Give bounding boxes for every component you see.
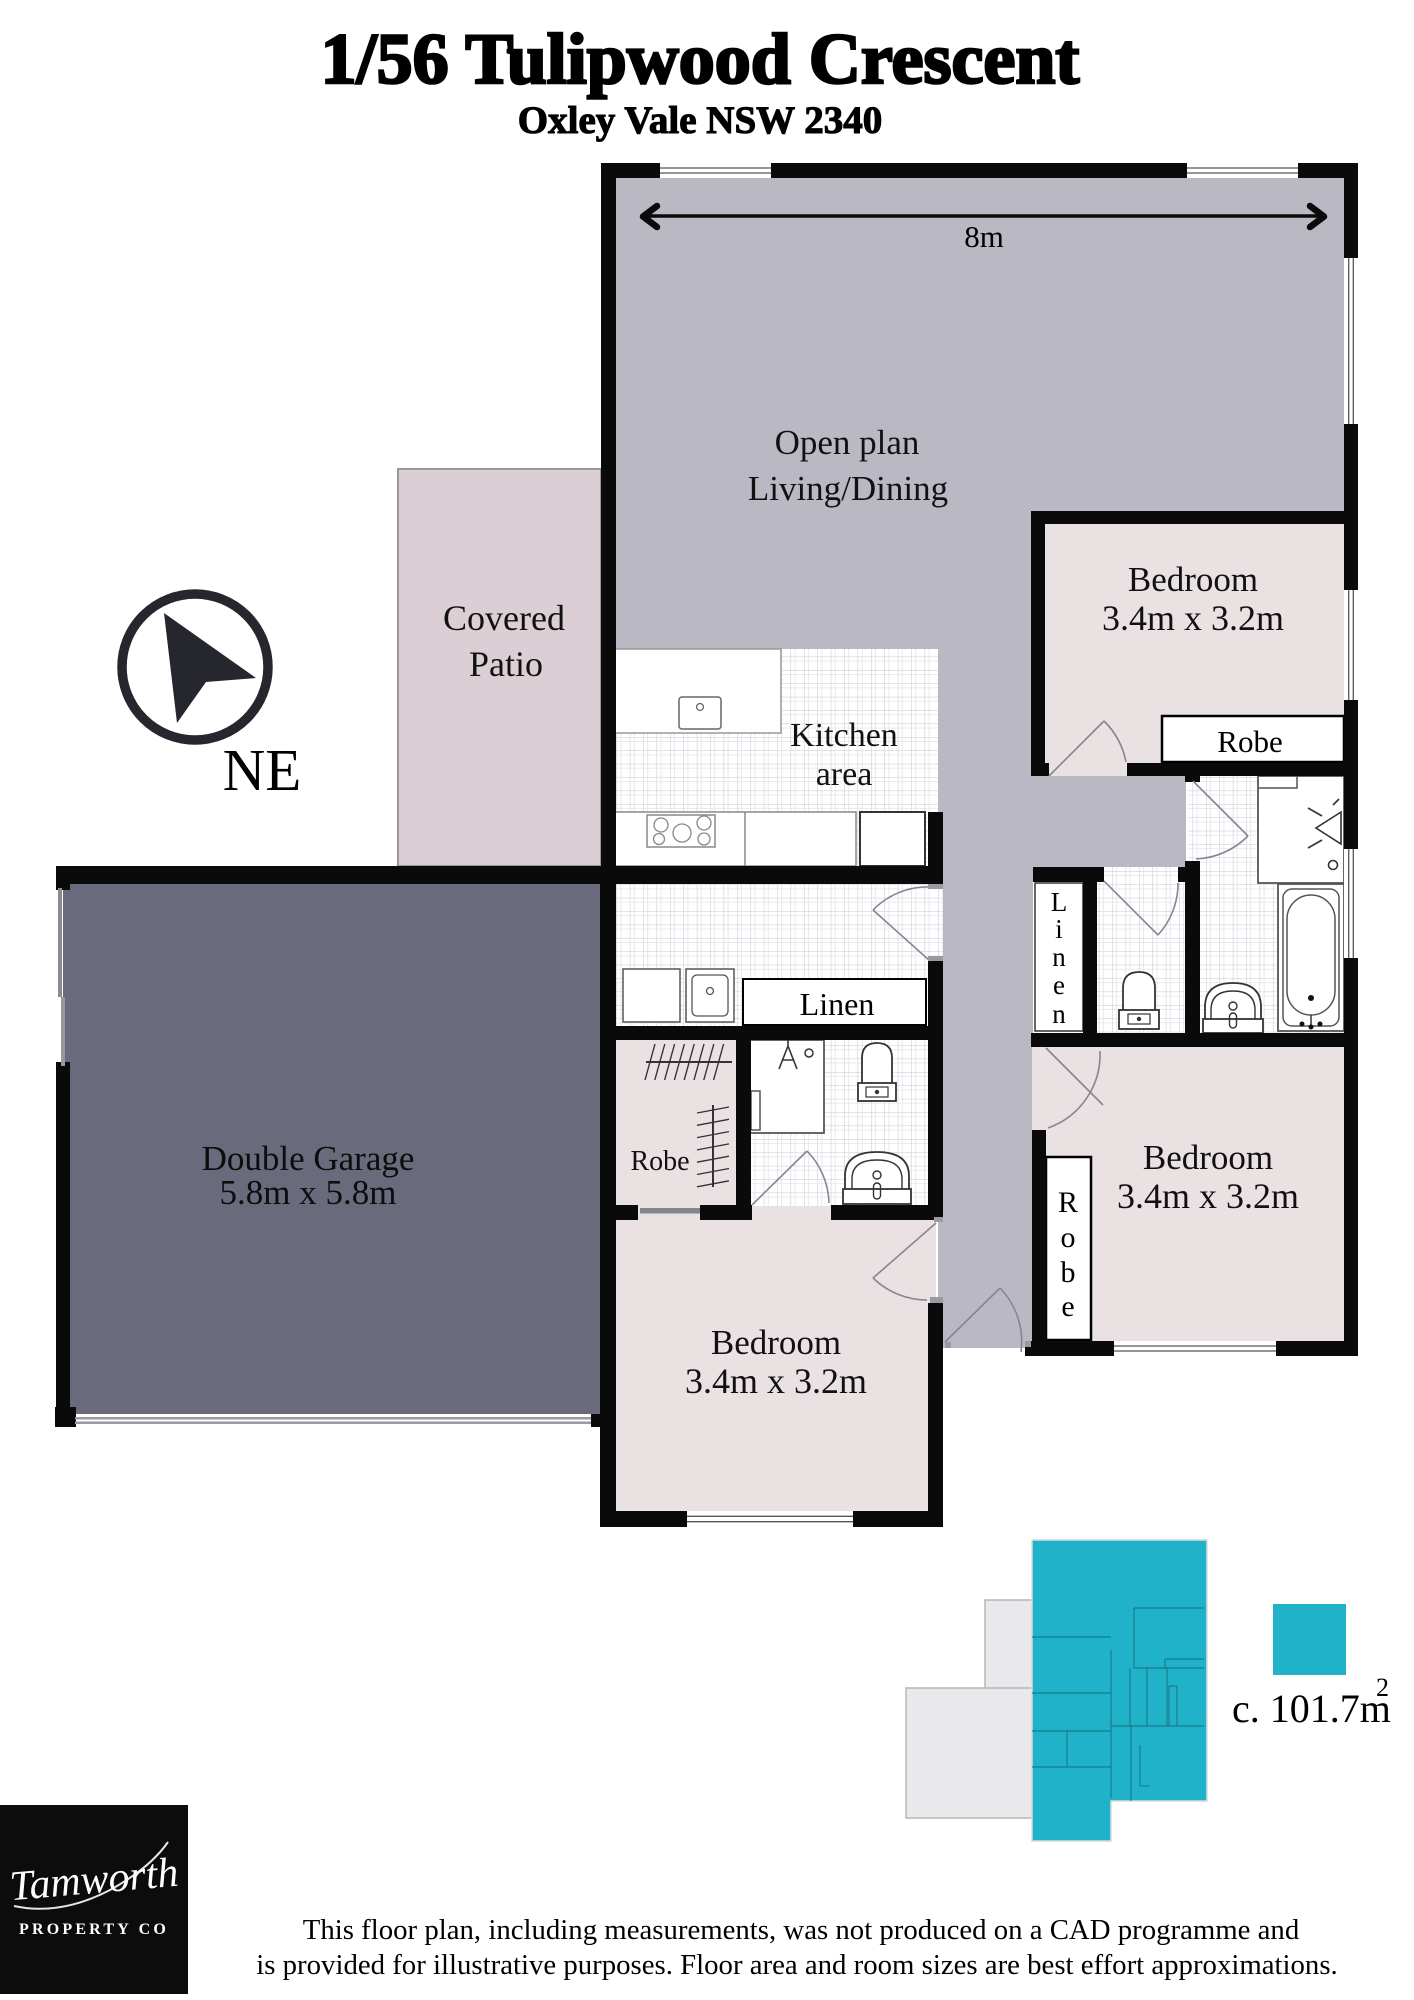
svg-text:Bedroom: Bedroom	[711, 1323, 841, 1362]
svg-text:3.4m x 3.2m: 3.4m x 3.2m	[685, 1361, 867, 1401]
svg-text:This floor plan, including mea: This floor plan, including measurements,…	[303, 1914, 1300, 1946]
svg-text:is provided for illustrative p: is provided for illustrative purposes. F…	[256, 1949, 1337, 1981]
svg-text:n: n	[1052, 999, 1066, 1029]
svg-text:Bedroom: Bedroom	[1128, 560, 1258, 599]
svg-text:Oxley Vale NSW 2340: Oxley Vale NSW 2340	[518, 99, 882, 142]
svg-text:n: n	[1052, 942, 1066, 972]
svg-text:NE: NE	[223, 737, 302, 803]
svg-text:8m: 8m	[964, 219, 1004, 254]
svg-text:5.8m x 5.8m: 5.8m x 5.8m	[220, 1173, 397, 1212]
svg-text:PROPERTY CO: PROPERTY CO	[19, 1921, 169, 1938]
svg-text:Living/Dining: Living/Dining	[748, 469, 948, 508]
svg-text:Robe: Robe	[1217, 724, 1282, 759]
svg-text:area: area	[816, 756, 873, 793]
svg-text:c. 101.7m: c. 101.7m	[1232, 1686, 1391, 1731]
svg-text:Bedroom: Bedroom	[1143, 1138, 1273, 1177]
svg-text:Open plan: Open plan	[775, 423, 920, 462]
svg-text:3.4m x 3.2m: 3.4m x 3.2m	[1117, 1176, 1299, 1216]
svg-text:R: R	[1058, 1186, 1078, 1219]
svg-text:i: i	[1055, 914, 1063, 944]
svg-text:Patio: Patio	[469, 644, 543, 684]
svg-text:L: L	[1051, 887, 1068, 917]
svg-text:Robe: Robe	[630, 1146, 689, 1177]
svg-text:o: o	[1061, 1221, 1076, 1254]
svg-text:b: b	[1061, 1256, 1076, 1289]
svg-text:Covered: Covered	[443, 598, 565, 638]
svg-text:2: 2	[1376, 1673, 1389, 1702]
svg-text:3.4m x 3.2m: 3.4m x 3.2m	[1102, 598, 1284, 638]
svg-text:e: e	[1053, 970, 1065, 1000]
svg-text:Kitchen: Kitchen	[790, 717, 898, 754]
svg-text:e: e	[1061, 1290, 1074, 1323]
svg-text:Linen: Linen	[800, 986, 875, 1022]
svg-text:1/56 Tulipwood Crescent: 1/56 Tulipwood Crescent	[321, 19, 1080, 99]
